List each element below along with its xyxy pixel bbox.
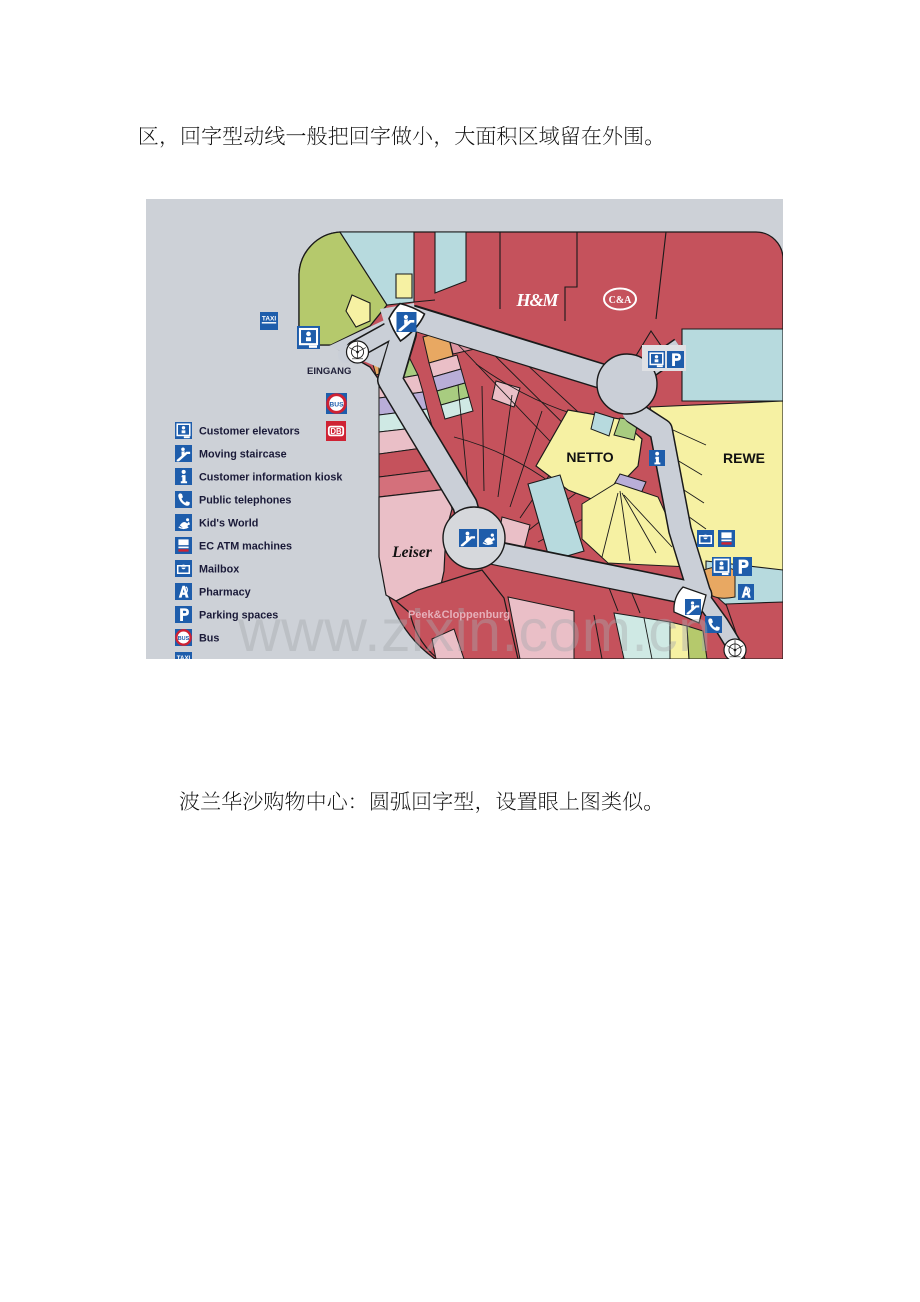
svg-text:REWE: REWE xyxy=(723,450,765,466)
svg-text:BUS: BUS xyxy=(329,401,344,408)
svg-text:NETTO: NETTO xyxy=(566,449,613,465)
svg-text:DB: DB xyxy=(330,427,342,436)
svg-text:C&A: C&A xyxy=(609,295,633,306)
svg-text:H&M: H&M xyxy=(515,290,559,310)
svg-text:Public telephones: Public telephones xyxy=(199,495,291,507)
svg-text:Mailbox: Mailbox xyxy=(199,564,239,576)
svg-text:Customer elevators: Customer elevators xyxy=(199,426,300,438)
svg-text:Kid's World: Kid's World xyxy=(199,518,258,530)
svg-text:EC ATM machines: EC ATM machines xyxy=(199,541,292,553)
svg-text:Bus: Bus xyxy=(199,633,219,645)
svg-text:TAXI: TAXI xyxy=(262,315,276,322)
svg-text:Leiser: Leiser xyxy=(391,544,433,561)
svg-text:TAXI: TAXI xyxy=(177,655,191,659)
svg-text:BUS: BUS xyxy=(178,636,190,642)
svg-text:EINGANG: EINGANG xyxy=(307,366,351,377)
svg-text:www.zixin.com.cn: www.zixin.com.cn xyxy=(237,598,712,659)
svg-text:Moving staircase: Moving staircase xyxy=(199,449,287,461)
svg-text:Pharmacy: Pharmacy xyxy=(199,587,251,599)
svg-text:Customer information kiosk: Customer information kiosk xyxy=(199,472,343,484)
